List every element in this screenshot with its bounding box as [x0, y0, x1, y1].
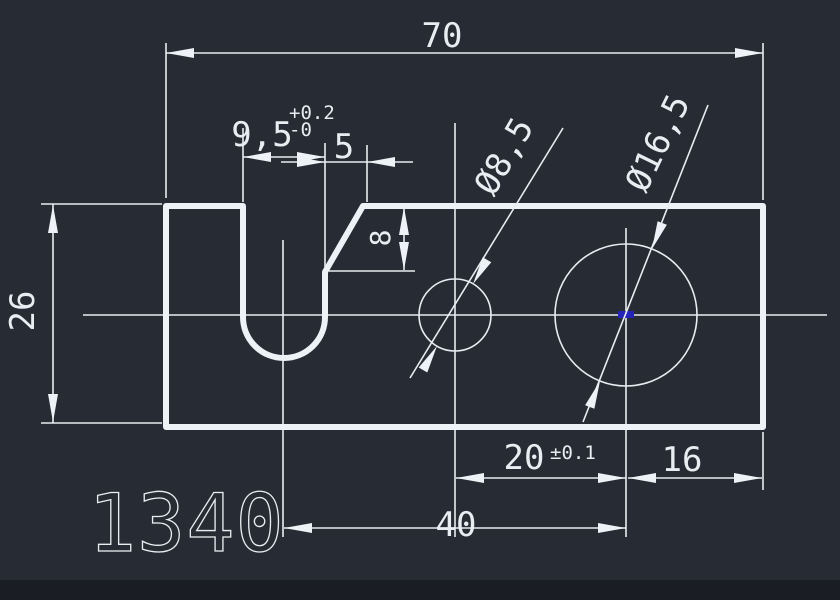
dim-text-slot-to-hole[interactable]: 40: [436, 505, 477, 545]
dim-text-overall-width[interactable]: 70: [422, 16, 463, 56]
dim-text-chamfer-depth[interactable]: 8: [364, 230, 397, 247]
dim-text-overall-height[interactable]: 26: [3, 291, 43, 332]
part-number-text[interactable]: 1340: [88, 477, 285, 570]
canvas-bottom-strip: [0, 580, 840, 600]
dim-tol-lower[interactable]: -0: [289, 119, 312, 141]
dim-tol-hole-spacing[interactable]: ±0.1: [550, 442, 596, 464]
cad-canvas: 70 26 9,5 +0.2 -0 5 8: [0, 0, 840, 600]
dim-text-right-edge[interactable]: 16: [662, 440, 703, 480]
dim-text-hole-spacing[interactable]: 20: [504, 438, 545, 478]
dim-text-chamfer-width[interactable]: 5: [334, 127, 354, 167]
dim-text-slot-width[interactable]: 9,5: [231, 115, 292, 155]
